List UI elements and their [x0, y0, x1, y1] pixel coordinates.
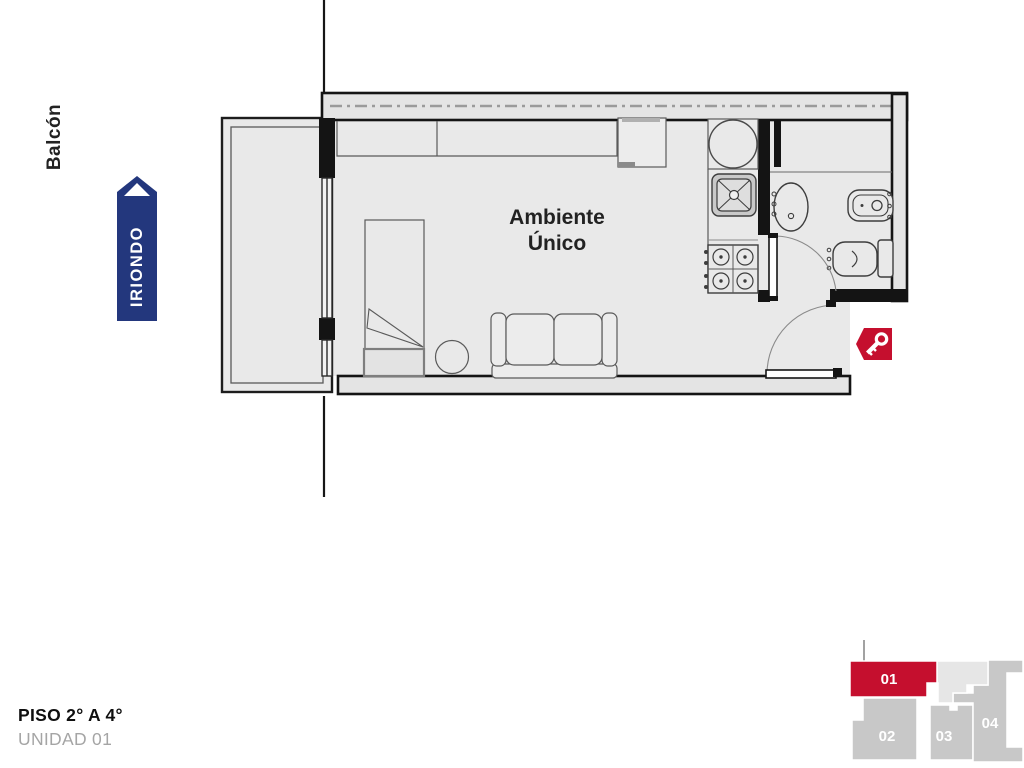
minimap-label-02: 02: [879, 728, 896, 745]
kitchen-bath-wall: [758, 119, 770, 235]
balcony-window: [322, 178, 332, 376]
window-pier-top: [319, 118, 335, 178]
kitchen-sink: [712, 174, 756, 216]
balcony-outline: [222, 118, 332, 392]
entry-key-tag: [855, 326, 895, 362]
right-wall: [892, 94, 907, 301]
stove: [704, 245, 758, 293]
unit-subtitle: UNIDAD 01: [18, 729, 123, 750]
minimap-label-04: 04: [982, 715, 999, 732]
main-room-label: Ambiente Único: [497, 205, 617, 258]
up-arrow-icon: [124, 183, 150, 196]
footer: PISO 2° A 4° UNIDAD 01: [18, 705, 123, 750]
floor-title: PISO 2° A 4°: [18, 705, 123, 726]
kitchen: [704, 119, 758, 293]
bed-bench: [364, 349, 424, 376]
street-banner: IRIONDO: [117, 176, 157, 321]
bed: [365, 220, 424, 349]
duct: [774, 121, 781, 167]
desk: [618, 118, 666, 167]
minimap-label-01: 01: [881, 671, 898, 688]
sofa: [491, 313, 617, 378]
minimap-label-03: 03: [936, 728, 953, 745]
bath-bottom-wall: [830, 289, 907, 302]
window-pier-mid: [319, 318, 335, 340]
washing-machine: [709, 120, 757, 168]
side-table: [436, 341, 469, 374]
bidet: [848, 190, 893, 221]
toilet: [827, 240, 893, 277]
floorplan-page: Ambiente Único Balcón IRIONDO PISO 2° A …: [0, 0, 1024, 768]
building-footprint-minimap: 01 02 03 04: [840, 640, 1024, 768]
street-name: IRIONDO: [128, 226, 147, 307]
